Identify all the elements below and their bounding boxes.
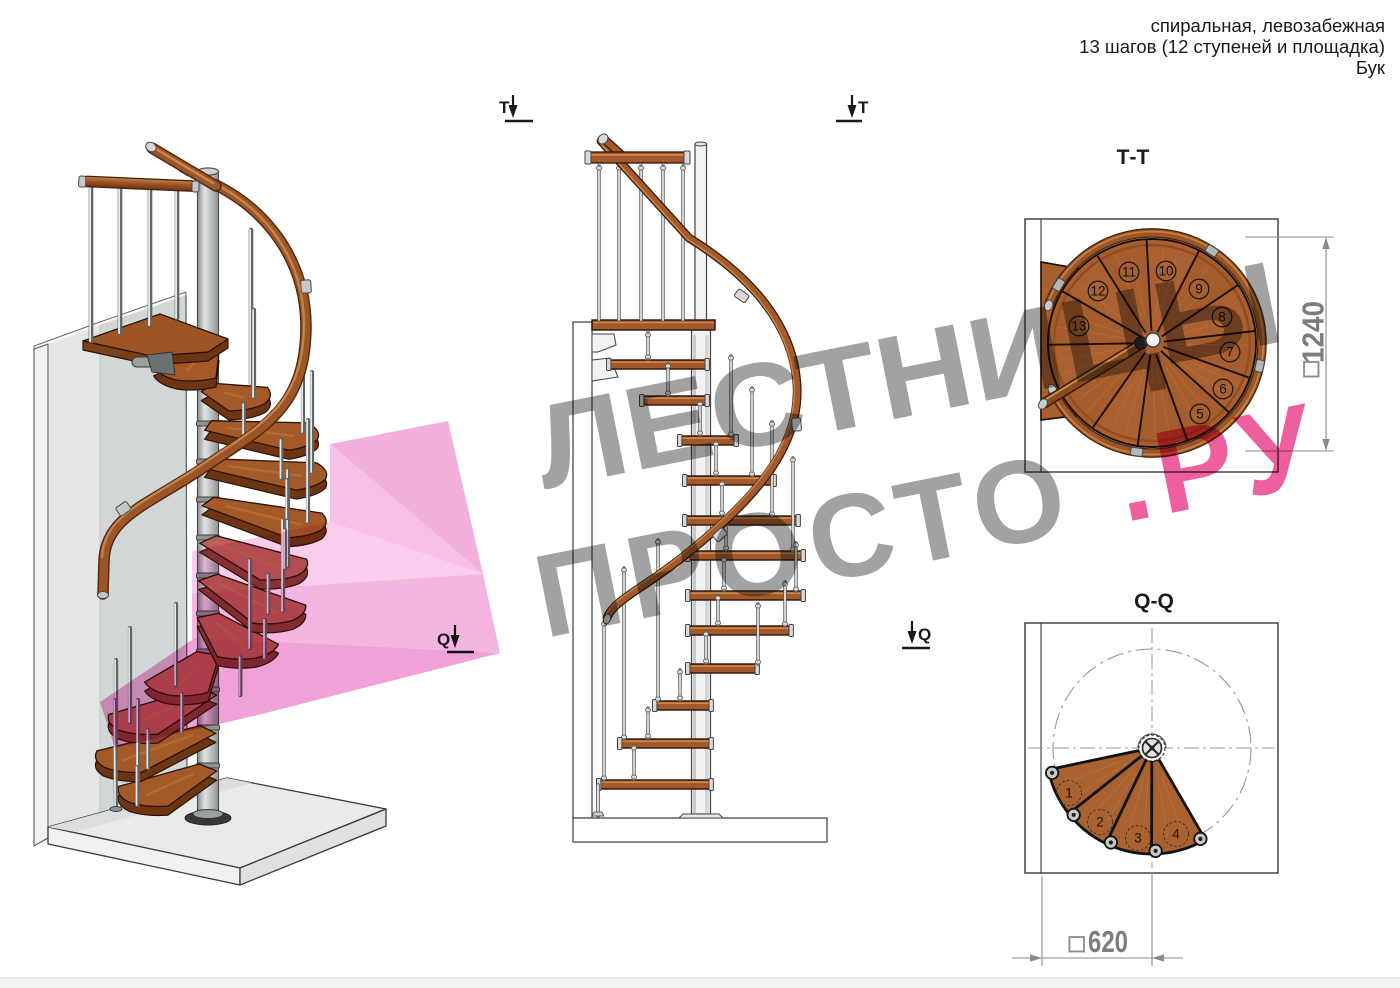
- svg-text:1: 1: [1065, 786, 1073, 801]
- svg-text:Т: Т: [499, 98, 510, 117]
- svg-text:Q-Q: Q-Q: [1134, 590, 1174, 613]
- svg-text:Т-Т: Т-Т: [1117, 146, 1150, 169]
- svg-text:Q: Q: [918, 625, 931, 644]
- svg-text:3: 3: [1134, 831, 1142, 846]
- svg-text:2: 2: [1096, 815, 1104, 830]
- svg-text:Т: Т: [858, 98, 869, 117]
- svg-text:4: 4: [1172, 827, 1180, 842]
- svg-text:Бук: Бук: [1356, 57, 1386, 78]
- svg-text:620: 620: [1088, 924, 1128, 959]
- svg-text:спиральная, левозабежная: спиральная, левозабежная: [1151, 15, 1385, 36]
- svg-text:1240: 1240: [1296, 301, 1331, 363]
- svg-text:13 шагов (12 ступеней и площад: 13 шагов (12 ступеней и площадка): [1079, 36, 1385, 57]
